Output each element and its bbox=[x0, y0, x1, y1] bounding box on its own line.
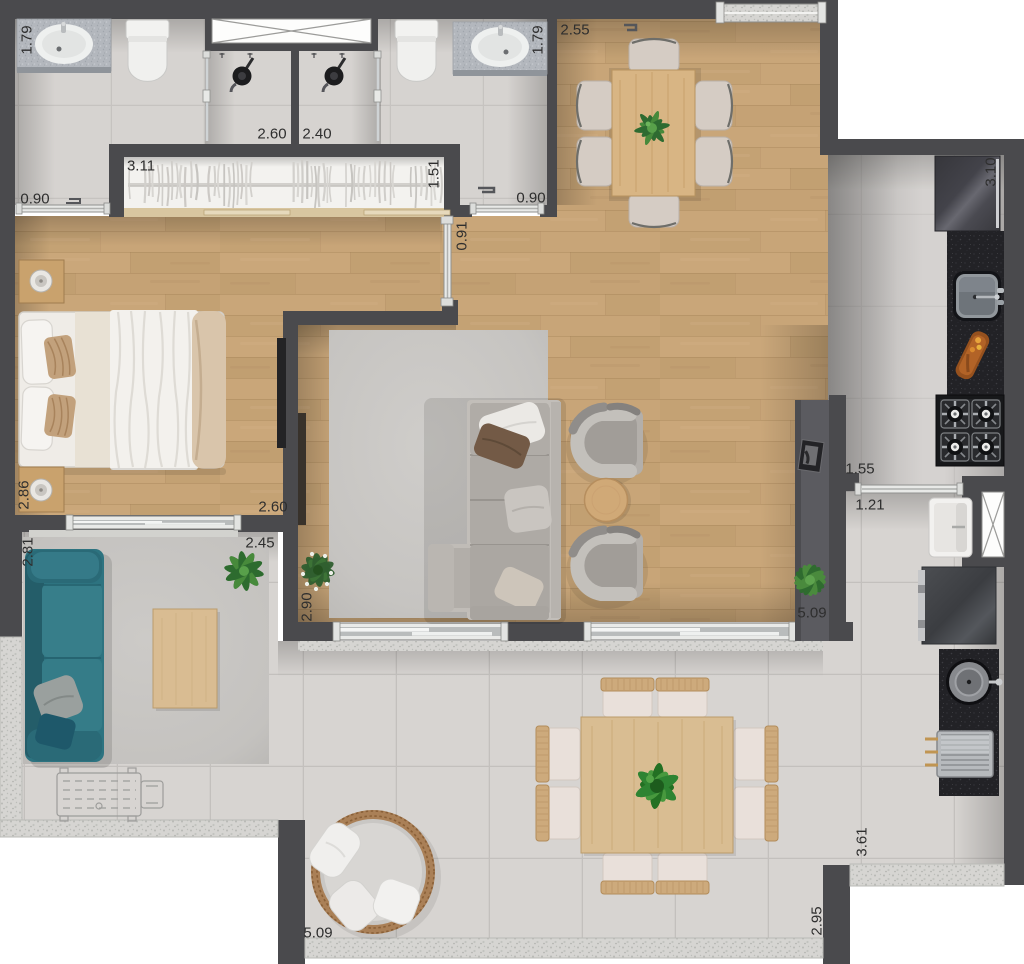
svg-text:0.90: 0.90 bbox=[516, 190, 545, 207]
svg-text:2.90: 2.90 bbox=[299, 592, 316, 621]
svg-text:1.21: 1.21 bbox=[855, 497, 884, 514]
svg-text:3.61: 3.61 bbox=[854, 827, 871, 856]
svg-text:2.60: 2.60 bbox=[257, 126, 286, 143]
svg-text:2.45: 2.45 bbox=[245, 535, 274, 552]
svg-text:0.91: 0.91 bbox=[454, 221, 471, 250]
svg-text:0.90: 0.90 bbox=[20, 191, 49, 208]
svg-text:3.11: 3.11 bbox=[127, 158, 155, 175]
svg-text:3.10: 3.10 bbox=[983, 157, 1000, 186]
svg-text:2.55: 2.55 bbox=[560, 22, 589, 39]
svg-text:1.55: 1.55 bbox=[845, 461, 874, 478]
svg-text:2.60: 2.60 bbox=[258, 499, 287, 516]
svg-text:2.86: 2.86 bbox=[16, 480, 33, 509]
svg-text:1.51: 1.51 bbox=[426, 159, 443, 188]
svg-text:5.09: 5.09 bbox=[303, 925, 332, 942]
svg-text:5.09: 5.09 bbox=[797, 605, 826, 622]
svg-text:2.81: 2.81 bbox=[20, 537, 37, 566]
svg-text:1.79: 1.79 bbox=[530, 25, 547, 54]
svg-text:2.95: 2.95 bbox=[809, 906, 826, 935]
svg-text:1.79: 1.79 bbox=[19, 25, 36, 54]
svg-text:2.40: 2.40 bbox=[302, 126, 331, 143]
